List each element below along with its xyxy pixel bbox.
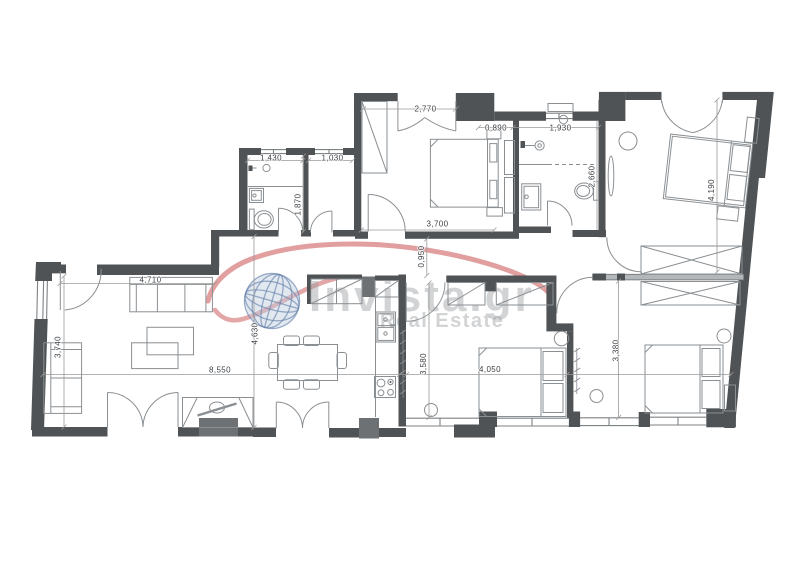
svg-text:3,580: 3,580 — [419, 353, 428, 375]
svg-text:3,380: 3,380 — [611, 339, 620, 361]
svg-text:3,740: 3,740 — [54, 336, 63, 358]
svg-text:4,050: 4,050 — [479, 365, 501, 374]
svg-text:1,430: 1,430 — [260, 153, 282, 162]
svg-text:2,770: 2,770 — [414, 104, 436, 113]
svg-text:1,930: 1,930 — [549, 123, 571, 132]
svg-text:1,870: 1,870 — [294, 193, 303, 215]
svg-text:4,710: 4,710 — [139, 275, 161, 284]
svg-text:0,950: 0,950 — [417, 245, 426, 267]
svg-text:3,700: 3,700 — [426, 219, 448, 228]
svg-text:2,660: 2,660 — [588, 165, 597, 187]
svg-text:4,190: 4,190 — [707, 179, 716, 201]
svg-text:0,890: 0,890 — [485, 123, 507, 132]
svg-text:8,550: 8,550 — [209, 366, 231, 375]
svg-text:4,630: 4,630 — [251, 322, 260, 344]
svg-text:1,030: 1,030 — [321, 153, 343, 162]
